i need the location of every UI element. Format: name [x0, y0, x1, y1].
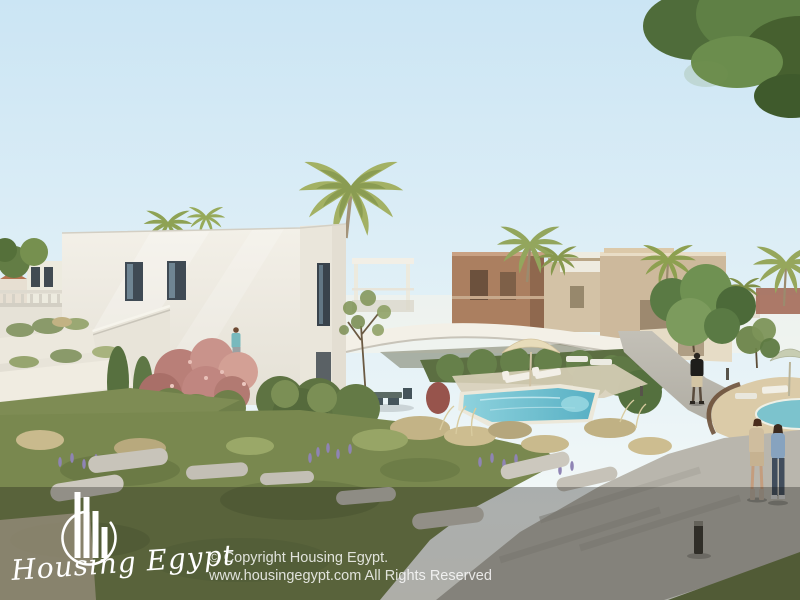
- copyright-line-1: © Copyright Housing Egypt.: [209, 550, 388, 566]
- scene-canvas: Housing Egypt © Copyright Housing Egypt.…: [0, 0, 800, 600]
- tower-window: [317, 263, 330, 326]
- burgundy-plant: [426, 382, 450, 414]
- villa-window: [125, 262, 143, 301]
- copyright-line-2: www.housingegypt.com All Rights Reserved: [208, 568, 492, 584]
- rendered-photo: Housing Egypt © Copyright Housing Egypt.…: [0, 0, 800, 600]
- villa-window: [167, 261, 186, 300]
